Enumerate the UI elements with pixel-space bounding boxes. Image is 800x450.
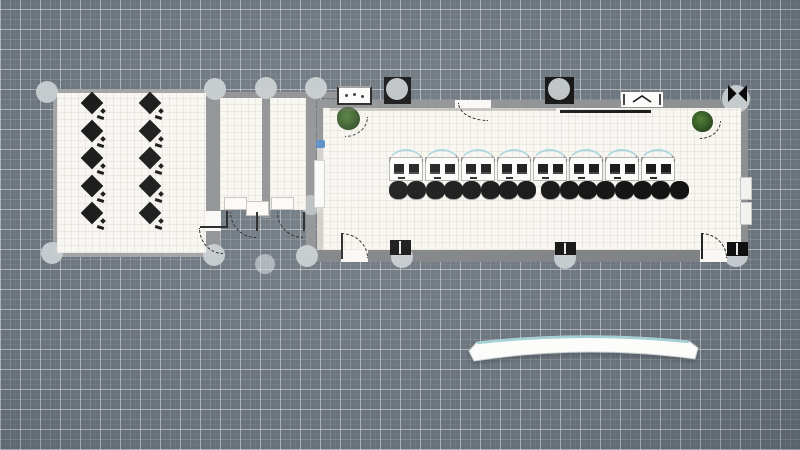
- monitor-icon: [409, 164, 419, 174]
- chair[interactable]: [444, 181, 463, 199]
- keyboard-icon: [398, 177, 405, 179]
- workstation[interactable]: [497, 157, 531, 181]
- keyboard-icon: [542, 177, 549, 179]
- workstation[interactable]: [425, 157, 459, 181]
- selection-handle[interactable]: [36, 81, 58, 103]
- table-mark: [361, 95, 364, 98]
- chair[interactable]: [407, 181, 426, 199]
- workstation[interactable]: [605, 157, 639, 181]
- keyboard-icon: [434, 177, 441, 179]
- selection-handle[interactable]: [386, 78, 408, 100]
- closet-b-door-swing-arc: [277, 212, 303, 238]
- wall-fixture[interactable]: [727, 242, 748, 256]
- workstation[interactable]: [533, 157, 567, 181]
- monitor-icon: [445, 164, 455, 174]
- keyboard-icon: [506, 177, 513, 179]
- monitor-icon: [481, 164, 491, 174]
- radiator[interactable]: [740, 202, 752, 225]
- keyboard-icon: [614, 177, 621, 179]
- chair[interactable]: [578, 181, 597, 199]
- monitor-icon: [646, 164, 656, 174]
- closet-a-floor[interactable]: [220, 98, 262, 210]
- closet-b-door-leaf[interactable]: [303, 212, 305, 231]
- keyboard-icon: [578, 177, 585, 179]
- closet-divider-wall[interactable]: [262, 95, 270, 218]
- closet-a-door-swing-arc: [230, 212, 256, 238]
- office-wall-bottom[interactable]: [53, 253, 210, 257]
- chair[interactable]: [481, 181, 500, 199]
- monitor-icon: [661, 164, 671, 174]
- corner-window-glyph: [727, 84, 748, 103]
- radiator[interactable]: [740, 177, 752, 200]
- monitor-icon: [517, 164, 527, 174]
- chair[interactable]: [651, 181, 670, 199]
- monitor-icon: [430, 164, 440, 174]
- workstation[interactable]: [461, 157, 495, 181]
- office-room-floor[interactable]: [57, 93, 206, 253]
- monitor-icon: [625, 164, 635, 174]
- floorplan-canvas[interactable]: [0, 0, 800, 450]
- selection-handle[interactable]: [204, 78, 226, 100]
- chair[interactable]: [541, 181, 560, 199]
- chair[interactable]: [560, 181, 579, 199]
- chair[interactable]: [517, 181, 536, 199]
- monitor-icon: [466, 164, 476, 174]
- table-mark: [345, 94, 348, 97]
- closet-b-floor[interactable]: [270, 98, 306, 210]
- monitor-icon: [574, 164, 584, 174]
- hall-room-floor[interactable]: [323, 108, 741, 250]
- monitor-icon: [610, 164, 620, 174]
- chair[interactable]: [615, 181, 634, 199]
- hall-wall-bottom[interactable]: [317, 250, 748, 262]
- selection-handle[interactable]: [548, 78, 570, 100]
- window[interactable]: [621, 92, 663, 107]
- corner-window[interactable]: [727, 84, 748, 103]
- wall-fixture[interactable]: [555, 242, 576, 255]
- workstation[interactable]: [389, 157, 423, 181]
- chair[interactable]: [499, 181, 518, 199]
- closet-table[interactable]: [224, 197, 247, 210]
- window-glyph: [621, 92, 663, 107]
- wall-fixture[interactable]: [390, 240, 411, 255]
- chair[interactable]: [670, 181, 689, 199]
- selection-handle[interactable]: [255, 254, 275, 274]
- wall-decor[interactable]: [316, 140, 325, 148]
- selection-handle[interactable]: [305, 77, 327, 99]
- workstation[interactable]: [641, 157, 675, 181]
- closet-table[interactable]: [271, 197, 294, 210]
- closet-a-door-leaf[interactable]: [256, 212, 258, 231]
- workstation[interactable]: [569, 157, 603, 181]
- monitor-icon: [538, 164, 548, 174]
- monitor-icon: [394, 164, 404, 174]
- fixture-slit: [564, 243, 566, 254]
- fixture-slit: [736, 243, 738, 255]
- hall-wall-top[interactable]: [317, 100, 748, 108]
- wall-shadow: [330, 108, 556, 111]
- table-mark: [353, 93, 356, 96]
- selection-handle[interactable]: [296, 245, 318, 267]
- fixture-slit: [399, 241, 401, 254]
- wall-board[interactable]: [560, 110, 651, 113]
- chair[interactable]: [426, 181, 445, 199]
- monitor-icon: [553, 164, 563, 174]
- wall-shelf[interactable]: [314, 160, 325, 208]
- keyboard-icon: [470, 177, 477, 179]
- chair[interactable]: [462, 181, 481, 199]
- monitor-icon: [502, 164, 512, 174]
- chair[interactable]: [596, 181, 615, 199]
- keyboard-icon: [650, 177, 657, 179]
- console-table[interactable]: [337, 86, 372, 105]
- chair[interactable]: [389, 181, 408, 199]
- reception-counter[interactable]: [455, 330, 710, 372]
- chair[interactable]: [633, 181, 652, 199]
- selection-handle[interactable]: [255, 77, 277, 99]
- monitor-icon: [589, 164, 599, 174]
